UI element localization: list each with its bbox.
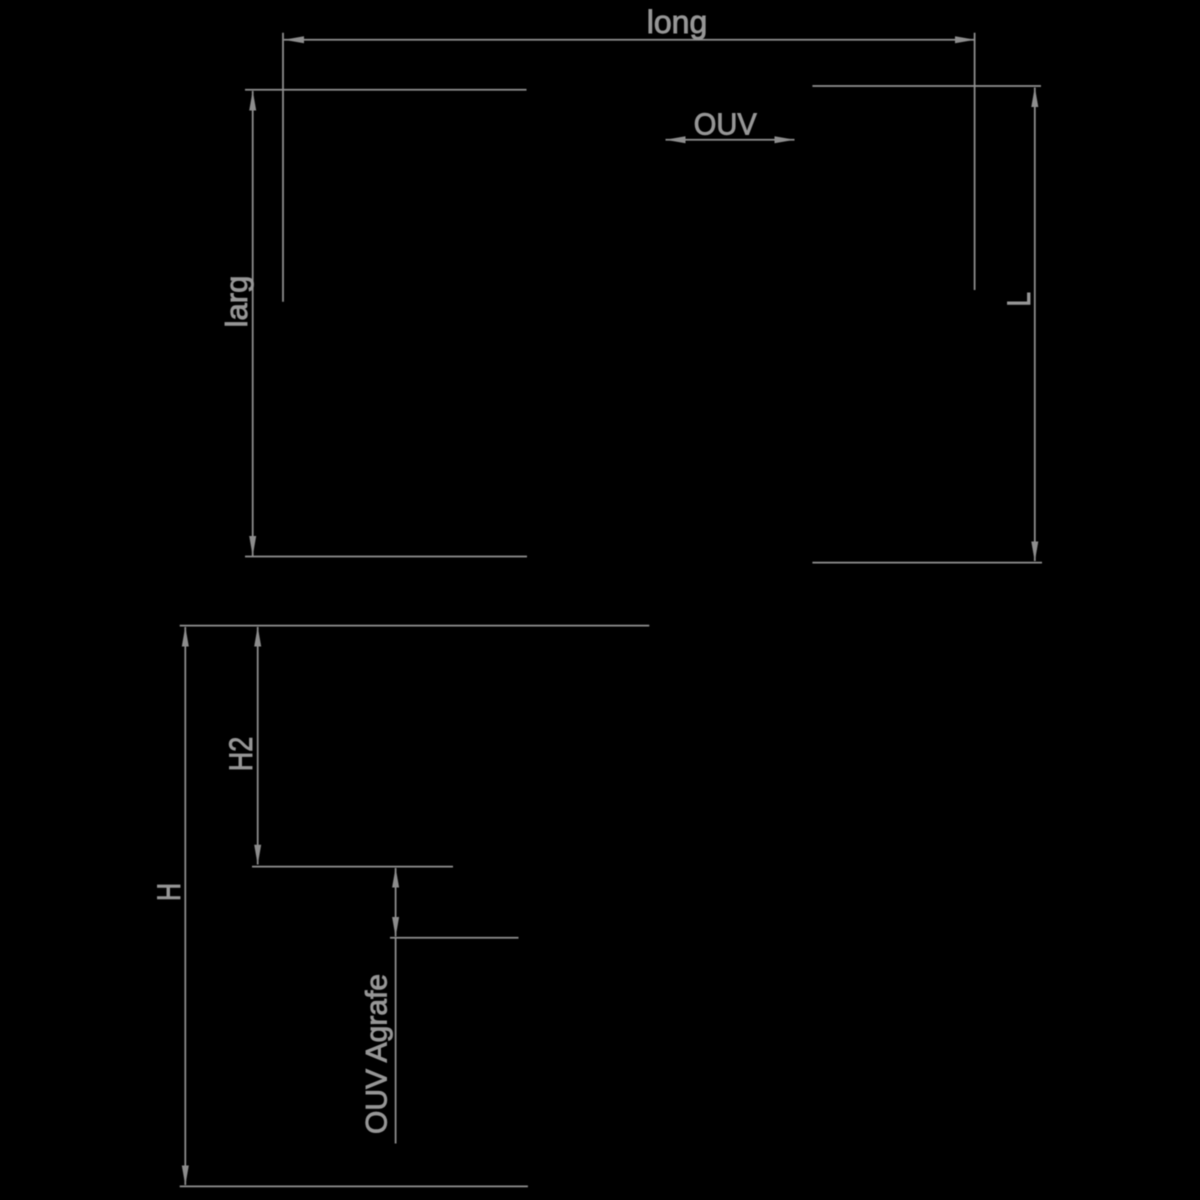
svg-text:L: L (1001, 292, 1037, 307)
svg-text:OUV Agrafe: OUV Agrafe (361, 974, 394, 1134)
svg-text:long: long (647, 4, 708, 40)
svg-text:H: H (151, 883, 187, 901)
svg-text:larg: larg (219, 276, 254, 328)
svg-text:H2: H2 (223, 737, 259, 772)
svg-text:OUV: OUV (694, 107, 757, 142)
